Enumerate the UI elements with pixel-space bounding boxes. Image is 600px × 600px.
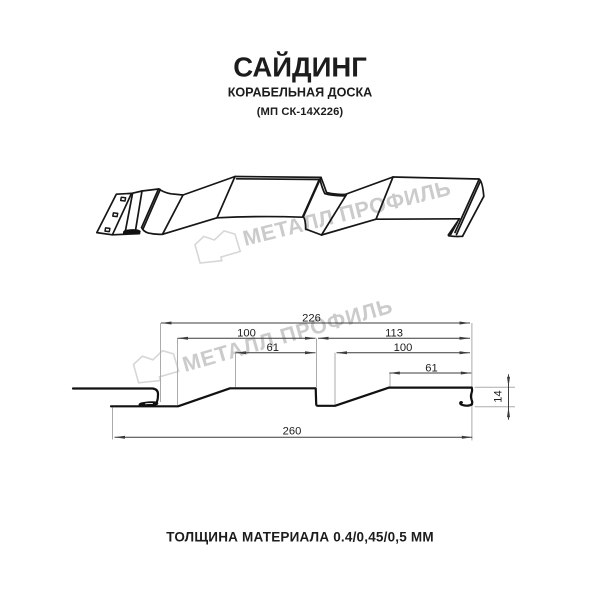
svg-text:100: 100 bbox=[237, 328, 256, 340]
svg-text:МЕТАЛЛ ПРОФИЛЬ: МЕТАЛЛ ПРОФИЛЬ bbox=[240, 176, 453, 251]
svg-text:КОРАБЕЛЬНАЯ ДОСКА: КОРАБЕЛЬНАЯ ДОСКА bbox=[228, 86, 373, 100]
svg-text:ТОЛЩИНА МАТЕРИАЛА 0.4/0,45/0,5: ТОЛЩИНА МАТЕРИАЛА 0.4/0,45/0,5 ММ bbox=[166, 529, 434, 544]
svg-text:САЙДИНГ: САЙДИНГ bbox=[233, 52, 367, 83]
svg-text:260: 260 bbox=[283, 425, 302, 437]
svg-text:(МП СК-14Х226): (МП СК-14Х226) bbox=[257, 106, 344, 118]
svg-text:100: 100 bbox=[394, 342, 413, 354]
svg-text:14: 14 bbox=[493, 390, 505, 402]
svg-text:61: 61 bbox=[266, 342, 278, 354]
svg-text:МЕТАЛЛ ПРОФИЛЬ: МЕТАЛЛ ПРОФИЛЬ bbox=[180, 294, 396, 377]
svg-text:61: 61 bbox=[425, 362, 437, 374]
svg-text:226: 226 bbox=[302, 313, 321, 325]
svg-text:113: 113 bbox=[385, 328, 403, 340]
